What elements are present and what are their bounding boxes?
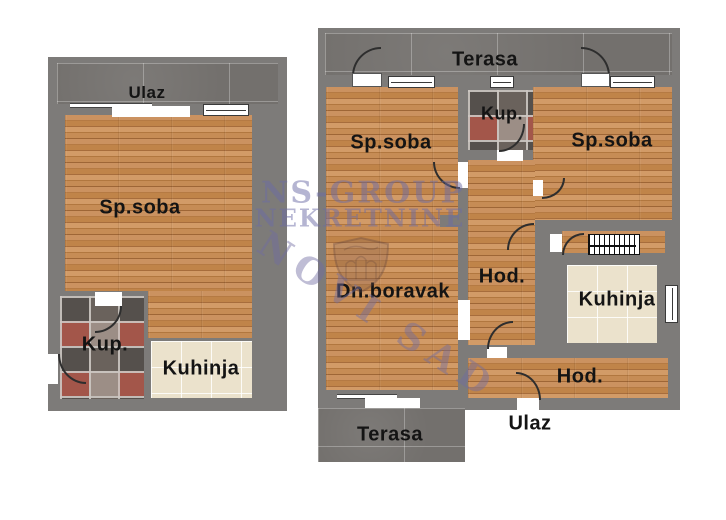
ulaz-entry-floor: [57, 63, 278, 104]
room-label-hod-bottom: Hod.: [557, 366, 603, 389]
watermark-line2: NEKRETNINE: [255, 204, 466, 233]
room-label-kuhinja: Kuhinja: [579, 289, 656, 312]
door-sill-icon: [352, 73, 382, 87]
sp-soba-floor-extension: [148, 291, 252, 338]
window-icon: [665, 285, 678, 323]
room-label-ulaz: Ulaz: [129, 83, 166, 103]
door-opening: [48, 354, 58, 384]
terasa-bottom-floor: Terasa: [318, 408, 465, 462]
room-label-sp-soba-right: Sp.soba: [571, 130, 652, 153]
room-label-terasa-bottom: Terasa: [357, 424, 423, 447]
door-opening: [550, 234, 562, 252]
stairs-icon: [588, 234, 640, 255]
room-label-hod: Hod.: [479, 266, 525, 289]
room-label-ulaz-right: Ulaz: [508, 413, 551, 436]
hod-floor: [468, 160, 535, 345]
sp-soba-right-floor: [533, 87, 672, 220]
window-icon: [388, 76, 435, 88]
window-icon: [490, 76, 514, 88]
door-sill-icon: [112, 106, 190, 117]
floor-plan-image: Ulaz Sp.soba Kup. Kuhinja: [0, 0, 726, 520]
room-label-terasa-top: Terasa: [452, 49, 518, 72]
room-label-kuhinja: Kuhinja: [163, 358, 240, 381]
floor-plan-left: Ulaz Sp.soba Kup. Kuhinja: [48, 57, 287, 411]
window-icon: [610, 76, 655, 88]
door-opening: [458, 300, 470, 340]
window-icon: [203, 104, 249, 116]
door-sill-icon: [581, 73, 610, 87]
room-label-sp-soba: Sp.soba: [99, 197, 180, 220]
door-opening: [95, 292, 122, 306]
room-label-kup: Kup.: [82, 334, 128, 357]
room-label-kup: Kup.: [481, 104, 523, 125]
room-label-sp-soba-left: Sp.soba: [350, 132, 431, 155]
